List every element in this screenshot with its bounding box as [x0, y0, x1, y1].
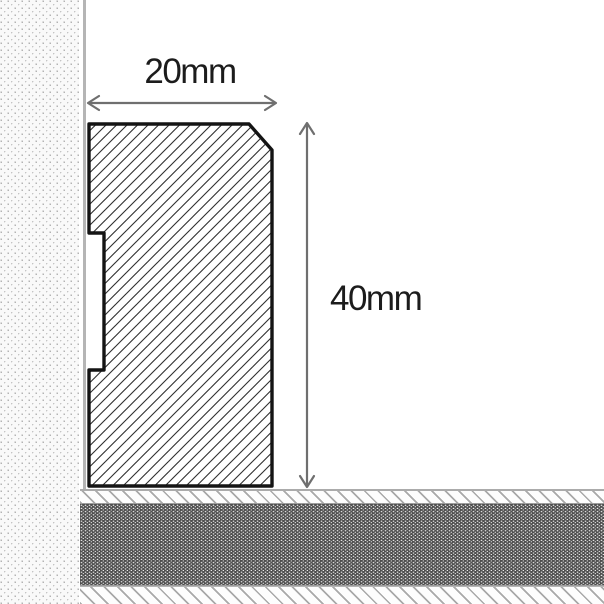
width-dimension-arrow [88, 96, 276, 110]
width-dimension-label: 20mm [116, 53, 264, 91]
height-dimension-label: 40mm [330, 280, 450, 318]
diagram-canvas: 20mm 40mm [0, 0, 604, 604]
height-dimension-arrow [300, 123, 314, 487]
skirting-profile-shape [89, 124, 272, 486]
profile-and-dimensions-drawing [0, 0, 604, 604]
